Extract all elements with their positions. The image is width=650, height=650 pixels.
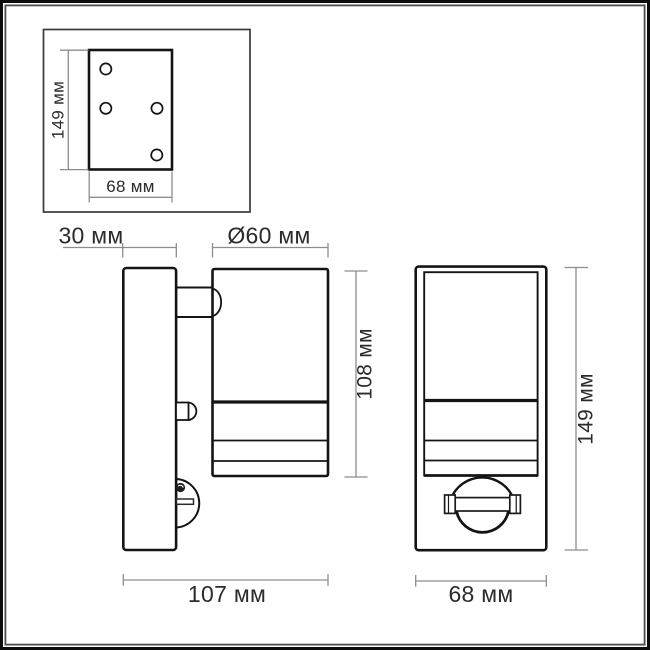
mounting-hole bbox=[151, 103, 162, 114]
sensor-band-tab-left bbox=[445, 495, 456, 513]
front-height-label: 149 мм bbox=[575, 373, 598, 445]
mounting-hole bbox=[100, 103, 111, 114]
technical-drawing-page: 149 мм 68 мм bbox=[0, 0, 650, 650]
wall-plate-side bbox=[123, 268, 176, 550]
knob-base bbox=[176, 403, 189, 421]
mounting-plate-inset: 149 мм 68 мм bbox=[44, 30, 251, 213]
lamp-body-side bbox=[213, 269, 329, 476]
sensor-band-tab-right bbox=[510, 495, 521, 513]
plate-depth-label: 30 мм bbox=[58, 223, 123, 249]
sensor-band bbox=[447, 498, 517, 511]
sensor-band-side bbox=[177, 499, 194, 504]
mounting-hole bbox=[151, 149, 162, 160]
technical-drawing: 149 мм 68 мм bbox=[0, 0, 650, 650]
sensor-screw bbox=[176, 483, 185, 492]
inset-width-label: 68 мм bbox=[106, 177, 155, 196]
switch-knob bbox=[176, 403, 196, 421]
mounting-hole bbox=[100, 63, 111, 74]
diameter-label: Ø60 мм bbox=[227, 223, 310, 249]
inset-height-label: 149 мм bbox=[49, 81, 68, 139]
total-depth-label: 107 мм bbox=[188, 581, 266, 607]
front-width-label: 68 мм bbox=[448, 581, 513, 607]
body-height-label: 108 мм bbox=[354, 328, 377, 400]
